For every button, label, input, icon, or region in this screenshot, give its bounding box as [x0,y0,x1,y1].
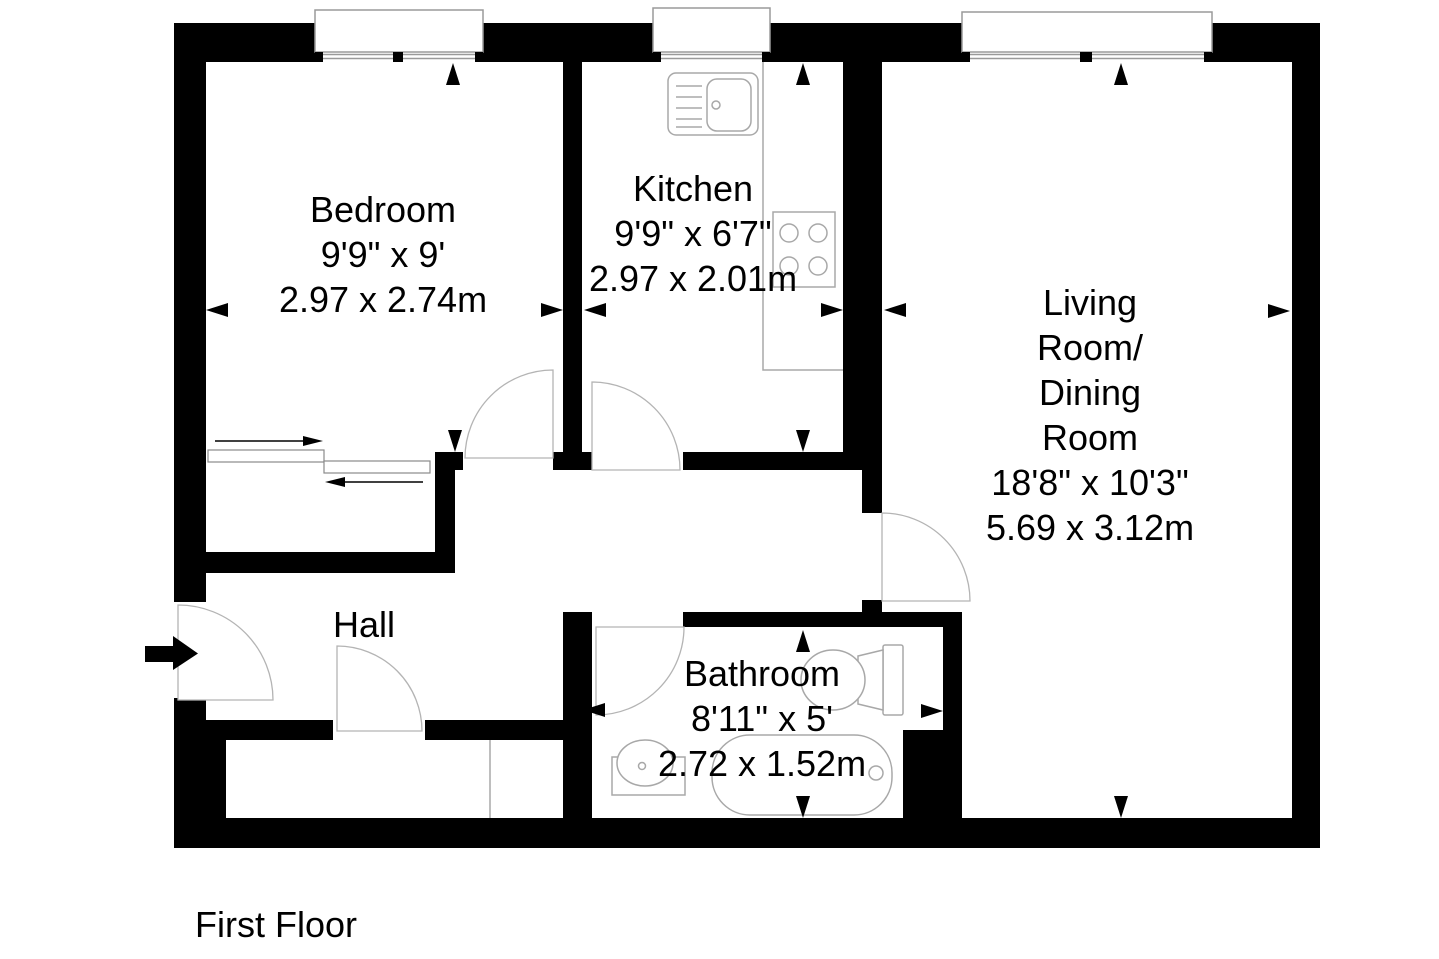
bedroom-size-m: 2.97 x 2.74m [279,279,487,320]
bedroom-bottom-wall [174,552,455,573]
living-name-line-2: Room/ [1037,327,1143,368]
right-wall [1292,23,1320,848]
living-name-line-4: Room [1042,417,1138,458]
bathroom-width-arrow-right-icon [921,704,943,718]
floor-plan-drawing: Bedroom 9'9" x 9' 2.97 x 2.74m Kitchen 9… [0,0,1439,959]
living-room-door-swing [882,513,970,601]
bathroom-name: Bathroom [684,653,840,694]
hall-door-left-jamb [435,452,463,470]
bedroom-right-wall [435,452,455,573]
bedroom-wardrobe [208,436,430,487]
living-room-window-end [962,52,970,62]
living-name-line-1: Living [1043,282,1137,323]
bathroom-left-wall [563,612,592,818]
closet-door-swing [337,646,422,731]
living-room-window-mullion [1080,52,1092,62]
toilet-cistern [883,645,903,715]
living-room-window [962,12,1212,62]
bedroom-window-end [475,52,483,62]
bathroom-door-swing [596,627,684,715]
bedroom-window-mullion [393,52,403,62]
bottom-wall [174,818,1320,848]
living-width-arrow-left-icon [884,303,906,317]
bedroom-window [315,10,483,62]
wardrobe-sliding-panel [324,461,430,473]
bathroom-depth-arrow-up-icon [796,630,810,652]
living-room-window-end [1204,52,1212,62]
kitchen-width-arrow-right-icon [821,303,843,317]
living-size-ft: 18'8" x 10'3" [991,462,1188,503]
sink-drain [712,101,720,109]
living-dining-label: Living Room/ Dining Room 18'8" x 10'3" 5… [986,282,1194,548]
living-width-arrow-right-icon [1268,304,1290,318]
hob-ring [809,224,827,242]
bathtub-drain [869,766,883,780]
bedroom-depth-arrow-up-icon [446,63,460,85]
bedroom-width-arrow-left-icon [206,303,228,317]
bedroom-window-end [315,52,323,62]
living-room-window-frame [962,12,1212,52]
kitchen-label: Kitchen 9'9" x 6'7" 2.97 x 2.01m [589,168,797,299]
hob-ring [809,257,827,275]
living-name-line-3: Dining [1039,372,1141,413]
bedroom-name: Bedroom [310,189,456,230]
bedroom-size-ft: 9'9" x 9' [321,234,446,275]
kitchen-window [653,8,770,62]
bathroom-right-wall-lower [903,730,962,818]
bathroom-right-wall-upper [943,627,962,730]
kitchen-window-end [653,52,661,62]
hob-ring [780,224,798,242]
hall-door-right-jamb [553,452,592,470]
wardrobe-sliding-panel [208,450,324,462]
kitchen-bottom-wall [683,452,882,470]
kitchen-depth-arrow-up-icon [796,63,810,85]
bathroom-label: Bathroom 8'11" x 5' 2.72 x 1.52m [658,653,866,784]
bathroom-top-wall [683,612,962,627]
kitchen-sink [668,73,758,135]
kitchen-size-ft: 9'9" x 6'7" [614,213,771,254]
kitchen-name: Kitchen [633,168,753,209]
kitchen-door-swing [592,382,680,470]
bathroom-size-m: 2.72 x 1.52m [658,743,866,784]
kitchen-depth-arrow-down-icon [796,430,810,452]
kitchen-size-m: 2.97 x 2.01m [589,258,797,299]
living-depth-arrow-down-icon [1114,796,1128,818]
bathroom-size-ft: 8'11" x 5' [691,698,833,739]
bedroom-door-swing [465,370,553,458]
kitchen-window-end [762,52,770,62]
bedroom-kitchen-wall [563,62,582,452]
hall-name: Hall [333,604,395,645]
kitchen-window-frame [653,8,770,52]
living-depth-arrow-up-icon [1114,63,1128,85]
kitchen-living-wall [843,23,882,470]
closet-top-wall-right [425,720,563,740]
wardrobe-slide-left-arrow [325,477,345,487]
bedroom-width-arrow-right-icon [541,303,563,317]
bedroom-label: Bedroom 9'9" x 9' 2.97 x 2.74m [279,189,487,320]
washbasin-drain [639,763,646,770]
living-size-m: 5.69 x 3.12m [986,507,1194,548]
bedroom-depth-arrow-down-icon [448,430,462,452]
closet-left-wall [206,740,226,818]
living-left-wall-upper [862,470,882,513]
closet-top-wall-left [206,720,333,740]
bedroom-window-frame [315,10,483,52]
wardrobe-slide-right-arrow [303,436,323,446]
kitchen-width-arrow-left-icon [584,303,606,317]
left-wall-upper [174,23,206,602]
floor-label: First Floor [195,904,357,945]
floor-plan-page: Bedroom 9'9" x 9' 2.97 x 2.74m Kitchen 9… [0,0,1439,959]
